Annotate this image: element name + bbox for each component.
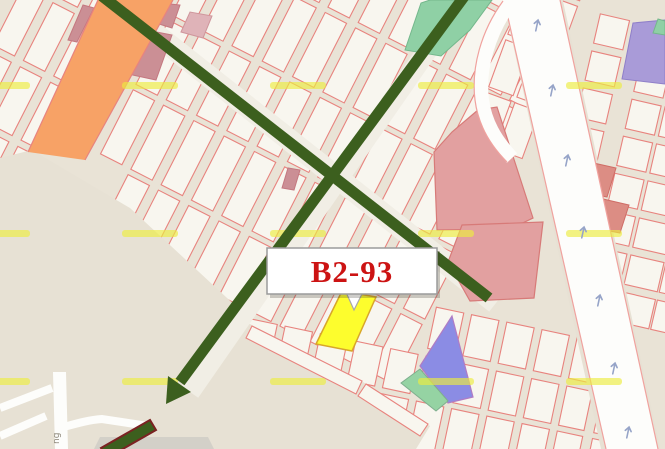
map-canvas[interactable]: ng B2-93 (0, 0, 665, 449)
street-label: ng (52, 433, 62, 444)
map-svg[interactable]: ng B2-93 (0, 0, 665, 449)
marker-label-text[interactable]: B2-93 (311, 254, 394, 289)
